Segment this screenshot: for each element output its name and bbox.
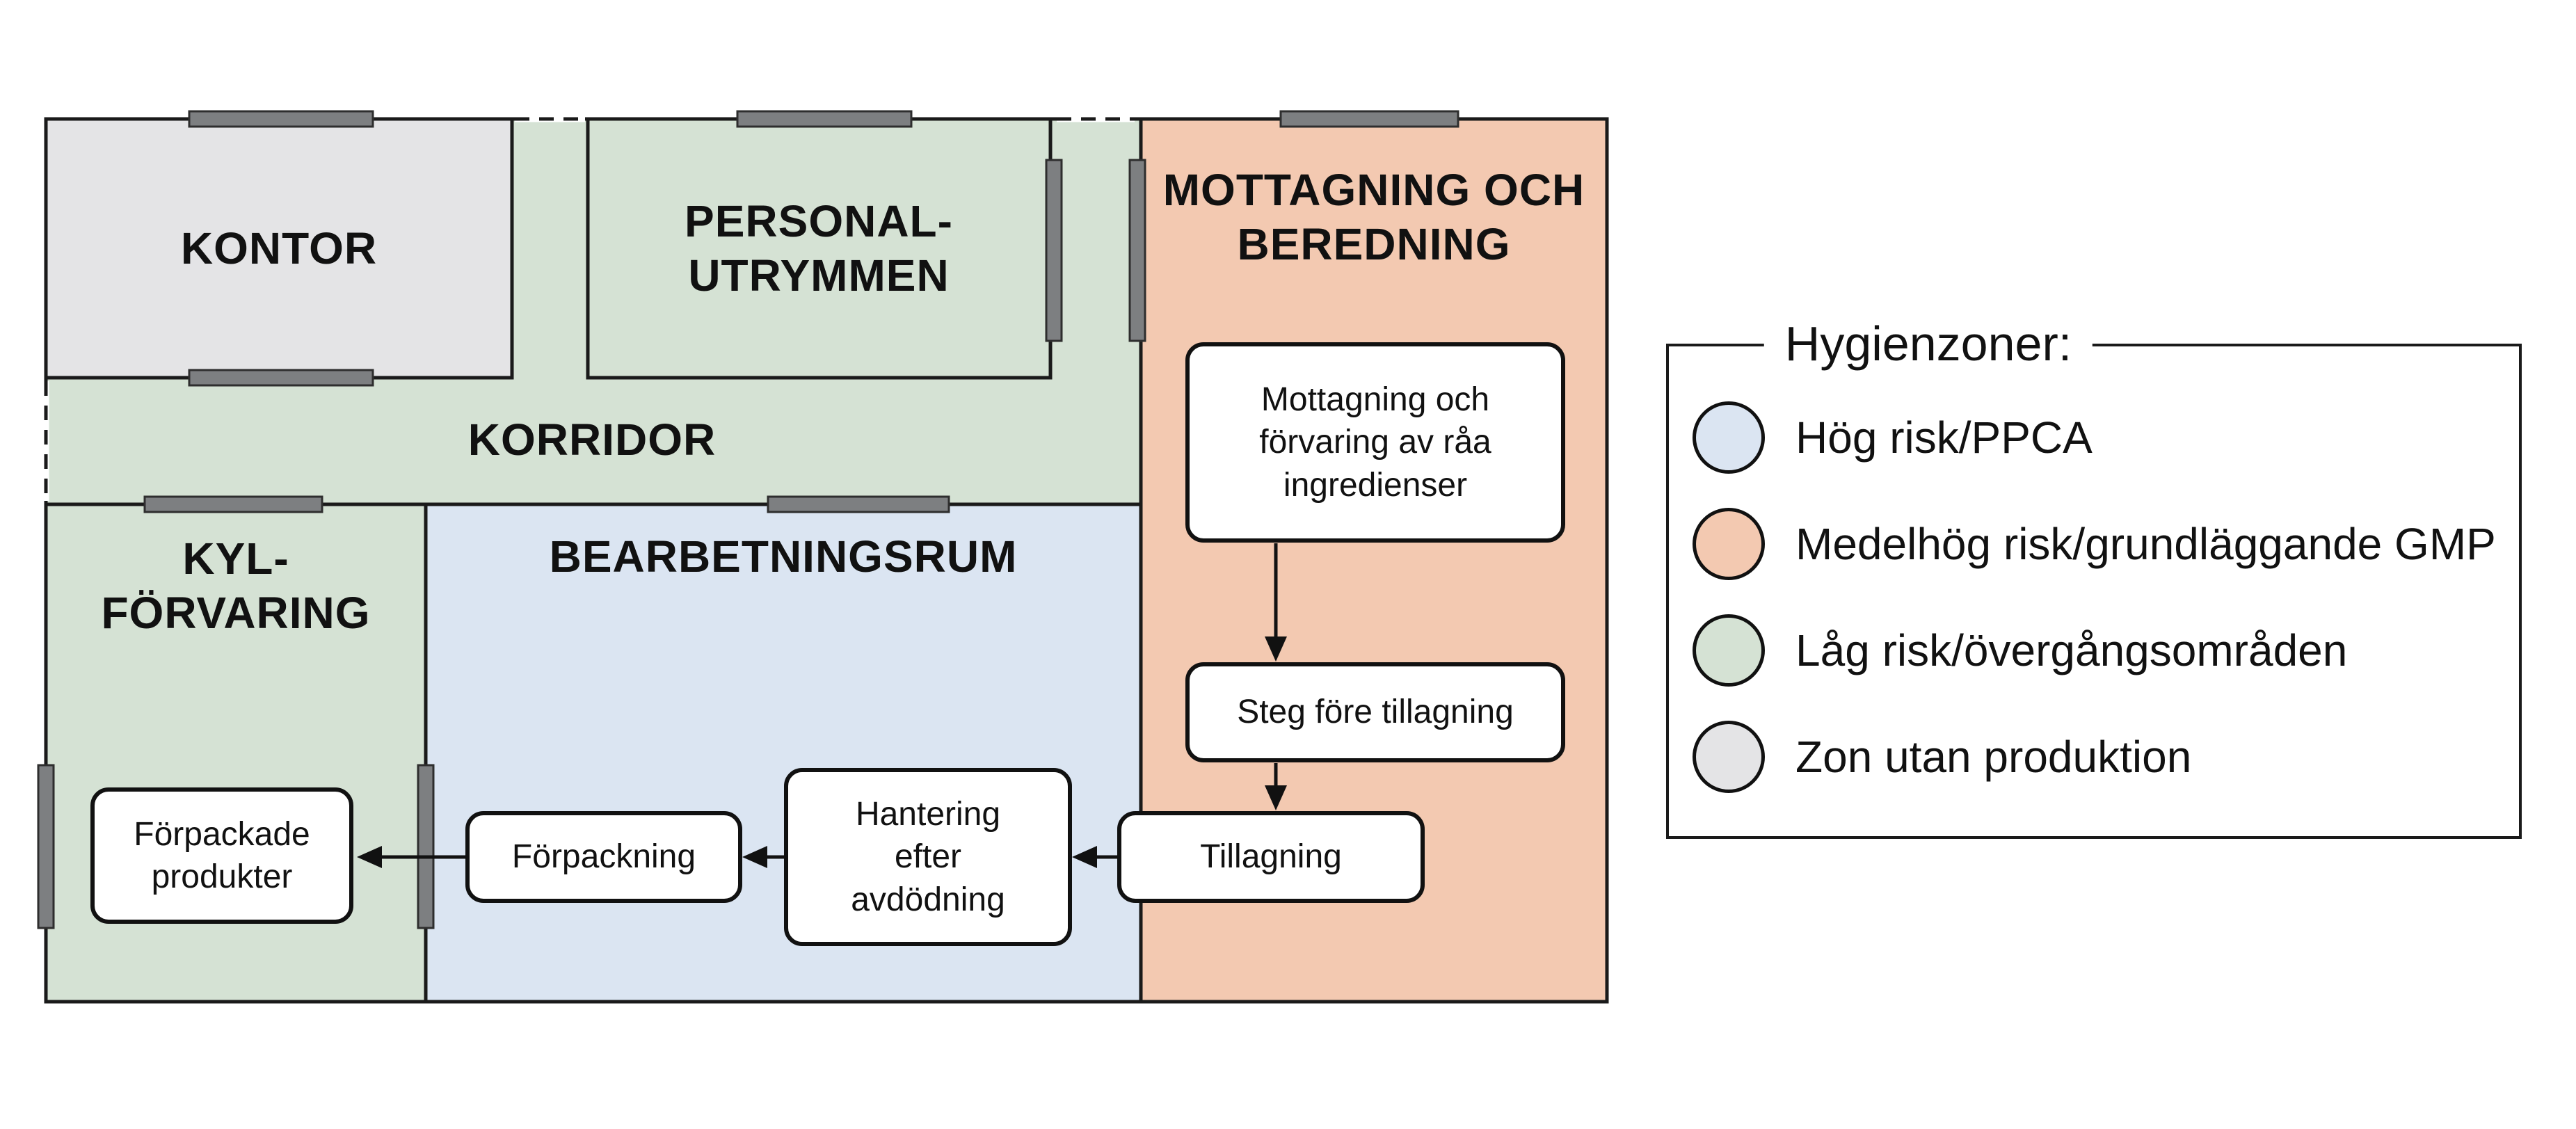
flow-box-line: produkter xyxy=(152,856,293,898)
flow-box-line: förvaring av råa xyxy=(1259,421,1491,463)
legend-swatch-low-risk xyxy=(1693,614,1765,687)
flow-box-forpackade-produkter: Förpackade produkter xyxy=(90,787,353,924)
room-label-bearbetningsrum: BEARBETNINGSRUM xyxy=(550,529,1018,584)
hygiene-zones-floor-plan: KONTOR PERSONAL- UTRYMMEN MOTTAGNING OCH… xyxy=(0,0,2576,1129)
flow-box-mottagning-forvaring: Mottagning och förvaring av råa ingredie… xyxy=(1185,342,1565,543)
flow-box-line: efter xyxy=(895,835,961,878)
door-marker-kyl-left xyxy=(38,765,54,928)
door-marker-kyl-top xyxy=(145,497,322,512)
legend-swatch-high-risk xyxy=(1693,401,1765,474)
door-marker-mottagning-left xyxy=(1130,160,1145,341)
door-marker-bearb-top xyxy=(768,497,949,512)
door-marker-personal-top xyxy=(737,111,911,127)
room-label-kylforvaring: KYL- FÖRVARING xyxy=(101,531,370,640)
flow-box-line: Tillagning xyxy=(1200,835,1342,878)
flow-box-line: Förpackade xyxy=(134,813,310,856)
door-marker-kontor-top xyxy=(189,111,373,127)
door-marker-mottagning-top xyxy=(1281,111,1458,127)
door-marker-kontor-bottom xyxy=(189,370,373,385)
legend-swatch-no-production xyxy=(1693,721,1765,793)
flow-box-line: avdödning xyxy=(851,879,1005,921)
legend-item-label: Zon utan produktion xyxy=(1795,731,2191,783)
flow-box-line: Mottagning och xyxy=(1261,378,1489,421)
room-label-kontor: KONTOR xyxy=(181,221,377,275)
flow-box-line: Hantering xyxy=(856,793,1000,835)
legend-item-label: Hög risk/PPCA xyxy=(1795,412,2093,463)
room-label-korridor: KORRIDOR xyxy=(468,413,716,467)
legend-item-zon-utan-produktion: Zon utan produktion xyxy=(1693,721,2191,793)
flow-box-line: Steg före tillagning xyxy=(1237,691,1514,733)
flow-box-line: ingredienser xyxy=(1283,464,1467,506)
room-label-line: PERSONAL- xyxy=(685,194,953,248)
flow-box-forpackning: Förpackning xyxy=(465,811,742,903)
legend-item-label: Medelhög risk/grundläggande GMP xyxy=(1795,518,2496,570)
room-label-line: BEREDNING xyxy=(1163,217,1585,271)
door-marker-personal-right xyxy=(1046,160,1062,341)
flow-box-line: Förpackning xyxy=(512,835,696,878)
flow-box-hantering-efter-avdodning: Hantering efter avdödning xyxy=(784,768,1072,946)
legend-item-label: Låg risk/övergångsområden xyxy=(1795,625,2347,676)
room-label-mottagning-och-beredning: MOTTAGNING OCH BEREDNING xyxy=(1163,163,1585,271)
flow-box-tillagning: Tillagning xyxy=(1117,811,1425,903)
legend-item-lag-risk: Låg risk/övergångsområden xyxy=(1693,614,2347,687)
flow-box-steg-fore-tillagning: Steg före tillagning xyxy=(1185,662,1565,762)
room-label-line: UTRYMMEN xyxy=(685,248,953,303)
room-label-personalutrymmen: PERSONAL- UTRYMMEN xyxy=(685,194,953,303)
room-label-line: MOTTAGNING OCH xyxy=(1163,163,1585,217)
legend-swatch-medium-risk xyxy=(1693,508,1765,580)
legend-title: Hygienzoner: xyxy=(1764,316,2093,371)
room-label-line: FÖRVARING xyxy=(101,586,370,640)
door-marker-kyl-bearb xyxy=(418,765,433,928)
legend-item-hog-risk: Hög risk/PPCA xyxy=(1693,401,2093,474)
legend-item-medelhog-risk: Medelhög risk/grundläggande GMP xyxy=(1693,508,2496,580)
room-label-line: KYL- xyxy=(101,531,370,586)
